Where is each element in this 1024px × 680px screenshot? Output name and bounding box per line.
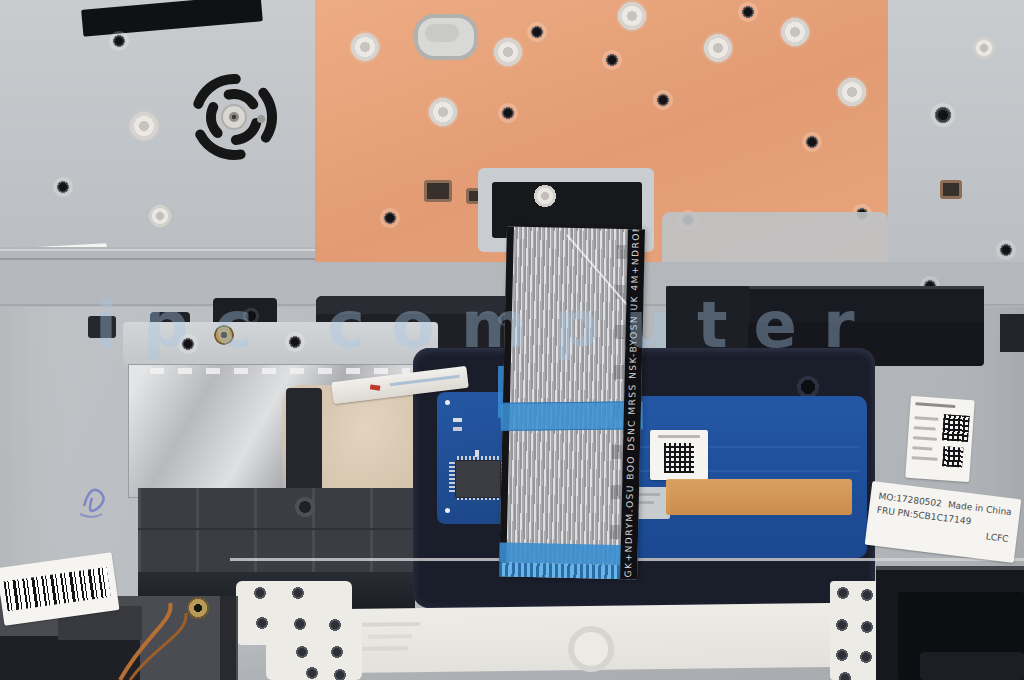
screw (383, 211, 397, 225)
surface-scratch (356, 646, 408, 651)
plastic-frame-corner (666, 286, 750, 352)
standoff-boss (349, 31, 381, 63)
metal-patch (662, 212, 888, 262)
grille-hole (333, 668, 347, 680)
label-text-line (915, 402, 955, 408)
rib-divider (138, 528, 420, 530)
plastic-tab (88, 316, 116, 338)
pcb-via (445, 400, 450, 405)
rib-lines (138, 488, 420, 574)
square-cutout (424, 180, 452, 202)
screw (934, 106, 952, 124)
touchpad-bracket-bar (338, 603, 837, 673)
red-mark (370, 384, 381, 390)
oval-standoff (414, 14, 478, 60)
standoff-boss (533, 184, 557, 208)
label-text-line (912, 456, 938, 461)
standoff-boss (427, 96, 459, 128)
label-text-line (914, 426, 936, 431)
keyboard-ribbon-cable: GK+NDRYM.OSU BOO DSNC MRSS NSK-BYOSN UK … (499, 226, 645, 579)
grille-hole (860, 620, 874, 634)
screw (530, 25, 544, 39)
plastic-tab (1000, 314, 1024, 352)
grille-hole (253, 586, 267, 600)
smd-component (453, 427, 462, 431)
housing-divider (220, 596, 236, 680)
standoff-boss (972, 36, 996, 60)
standoff-boss (836, 76, 868, 108)
qr-code (942, 414, 970, 442)
square-cutout (940, 180, 962, 199)
slot-cutout (286, 388, 322, 492)
grille-hole (836, 586, 850, 600)
standoff-boss (128, 110, 160, 142)
label-text-line (914, 416, 938, 421)
bracket-ring-hole (568, 626, 615, 673)
screw (999, 243, 1013, 257)
screw (605, 53, 619, 67)
laptop-palmrest-internal-photo: GK+NDRYM.OSU BOO DSNC MRSS NSK-BYOSN UK … (0, 0, 1024, 680)
grille-hole (838, 671, 852, 680)
ribbon-part-number: GK+NDRYM.OSU BOO DSNC MRSS NSK-BYOSN UK … (623, 231, 641, 577)
grille-hole (860, 588, 874, 602)
screw (112, 34, 126, 48)
blue-tape-band (501, 401, 643, 431)
grille-hole (835, 618, 849, 632)
grille-hole (255, 616, 269, 630)
qr-label-right (905, 396, 975, 482)
kapton-tape (666, 479, 852, 515)
screw (805, 135, 819, 149)
speaker-box (920, 652, 1024, 680)
brass-screw-boss (185, 595, 211, 621)
screw (56, 180, 70, 194)
handwriting-mark (62, 462, 122, 532)
grille-hole (295, 645, 309, 659)
palmrest-metal-top-right (888, 0, 1024, 262)
standoff-boss (148, 204, 172, 228)
screw (501, 106, 515, 120)
label-text-line (913, 436, 937, 441)
qr-code (664, 443, 694, 473)
touchpad-support-bracket (123, 322, 438, 366)
screw (288, 335, 302, 349)
grille-hole (291, 586, 305, 600)
qr-code (942, 446, 963, 467)
oval-standoff-core (425, 24, 459, 42)
pcb-via (445, 508, 450, 513)
label-text-line (912, 446, 932, 450)
grille-hole (293, 617, 307, 631)
grille-hole (328, 618, 342, 632)
grille-hole (330, 645, 344, 659)
standoff-boss (779, 16, 811, 48)
standoff-boss (702, 32, 734, 64)
grille-hole (859, 650, 873, 664)
label-text-line (658, 435, 700, 438)
qr-label-touchpad (650, 430, 708, 480)
fru-label: MO:17280502 Made in China FRU PN:5CB1C17… (865, 481, 1022, 563)
smd-component (453, 418, 462, 422)
touchpad-controller-chip (455, 460, 501, 498)
speaker-housing-right (876, 566, 1024, 680)
surface-scratch (368, 634, 412, 639)
surface-scratch (360, 622, 420, 627)
grille-hole (305, 666, 319, 680)
standoff-boss (492, 36, 524, 68)
standoff-boss (616, 0, 648, 32)
cable-print-line (390, 375, 460, 387)
screw-hub (292, 494, 318, 520)
spiral-flex-cutout (178, 64, 290, 172)
ribbed-plastic-base (138, 488, 420, 574)
perforation-row (150, 368, 410, 374)
edge-highlight (876, 566, 1024, 570)
grille-hole (835, 648, 849, 662)
screw (181, 337, 195, 351)
brass-screw-boss (214, 325, 234, 345)
barcode (3, 567, 110, 611)
screw (741, 5, 755, 19)
screw (656, 93, 670, 107)
